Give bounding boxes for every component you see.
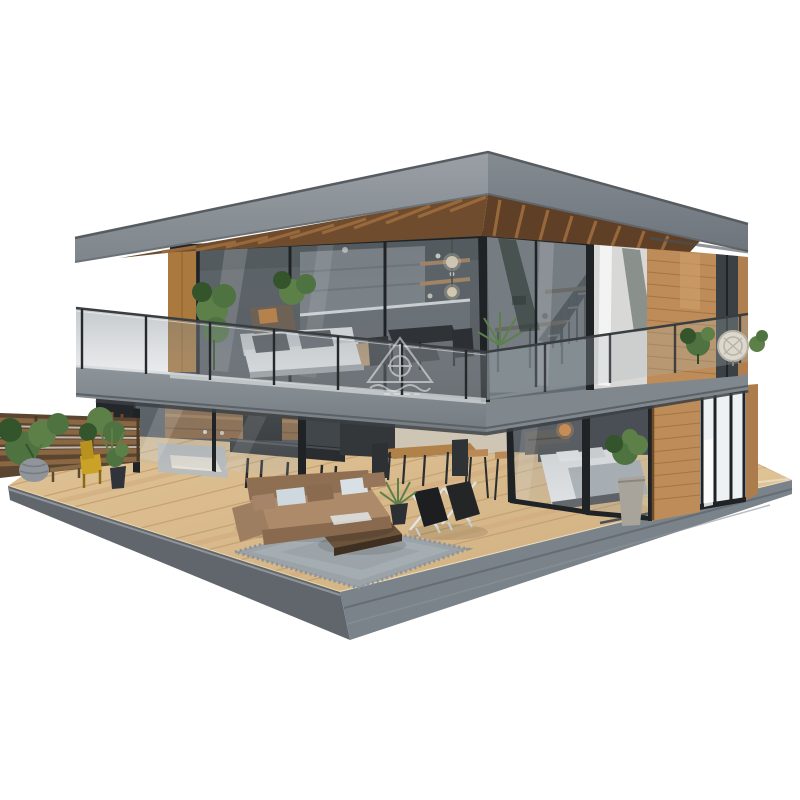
cedar-edge-strip — [746, 384, 758, 500]
frosted-windows — [700, 386, 746, 510]
house-illustration — [0, 0, 800, 800]
cedar-column — [652, 389, 700, 521]
render-canvas — [0, 0, 800, 800]
outdoor-brown-sofa — [232, 470, 395, 545]
